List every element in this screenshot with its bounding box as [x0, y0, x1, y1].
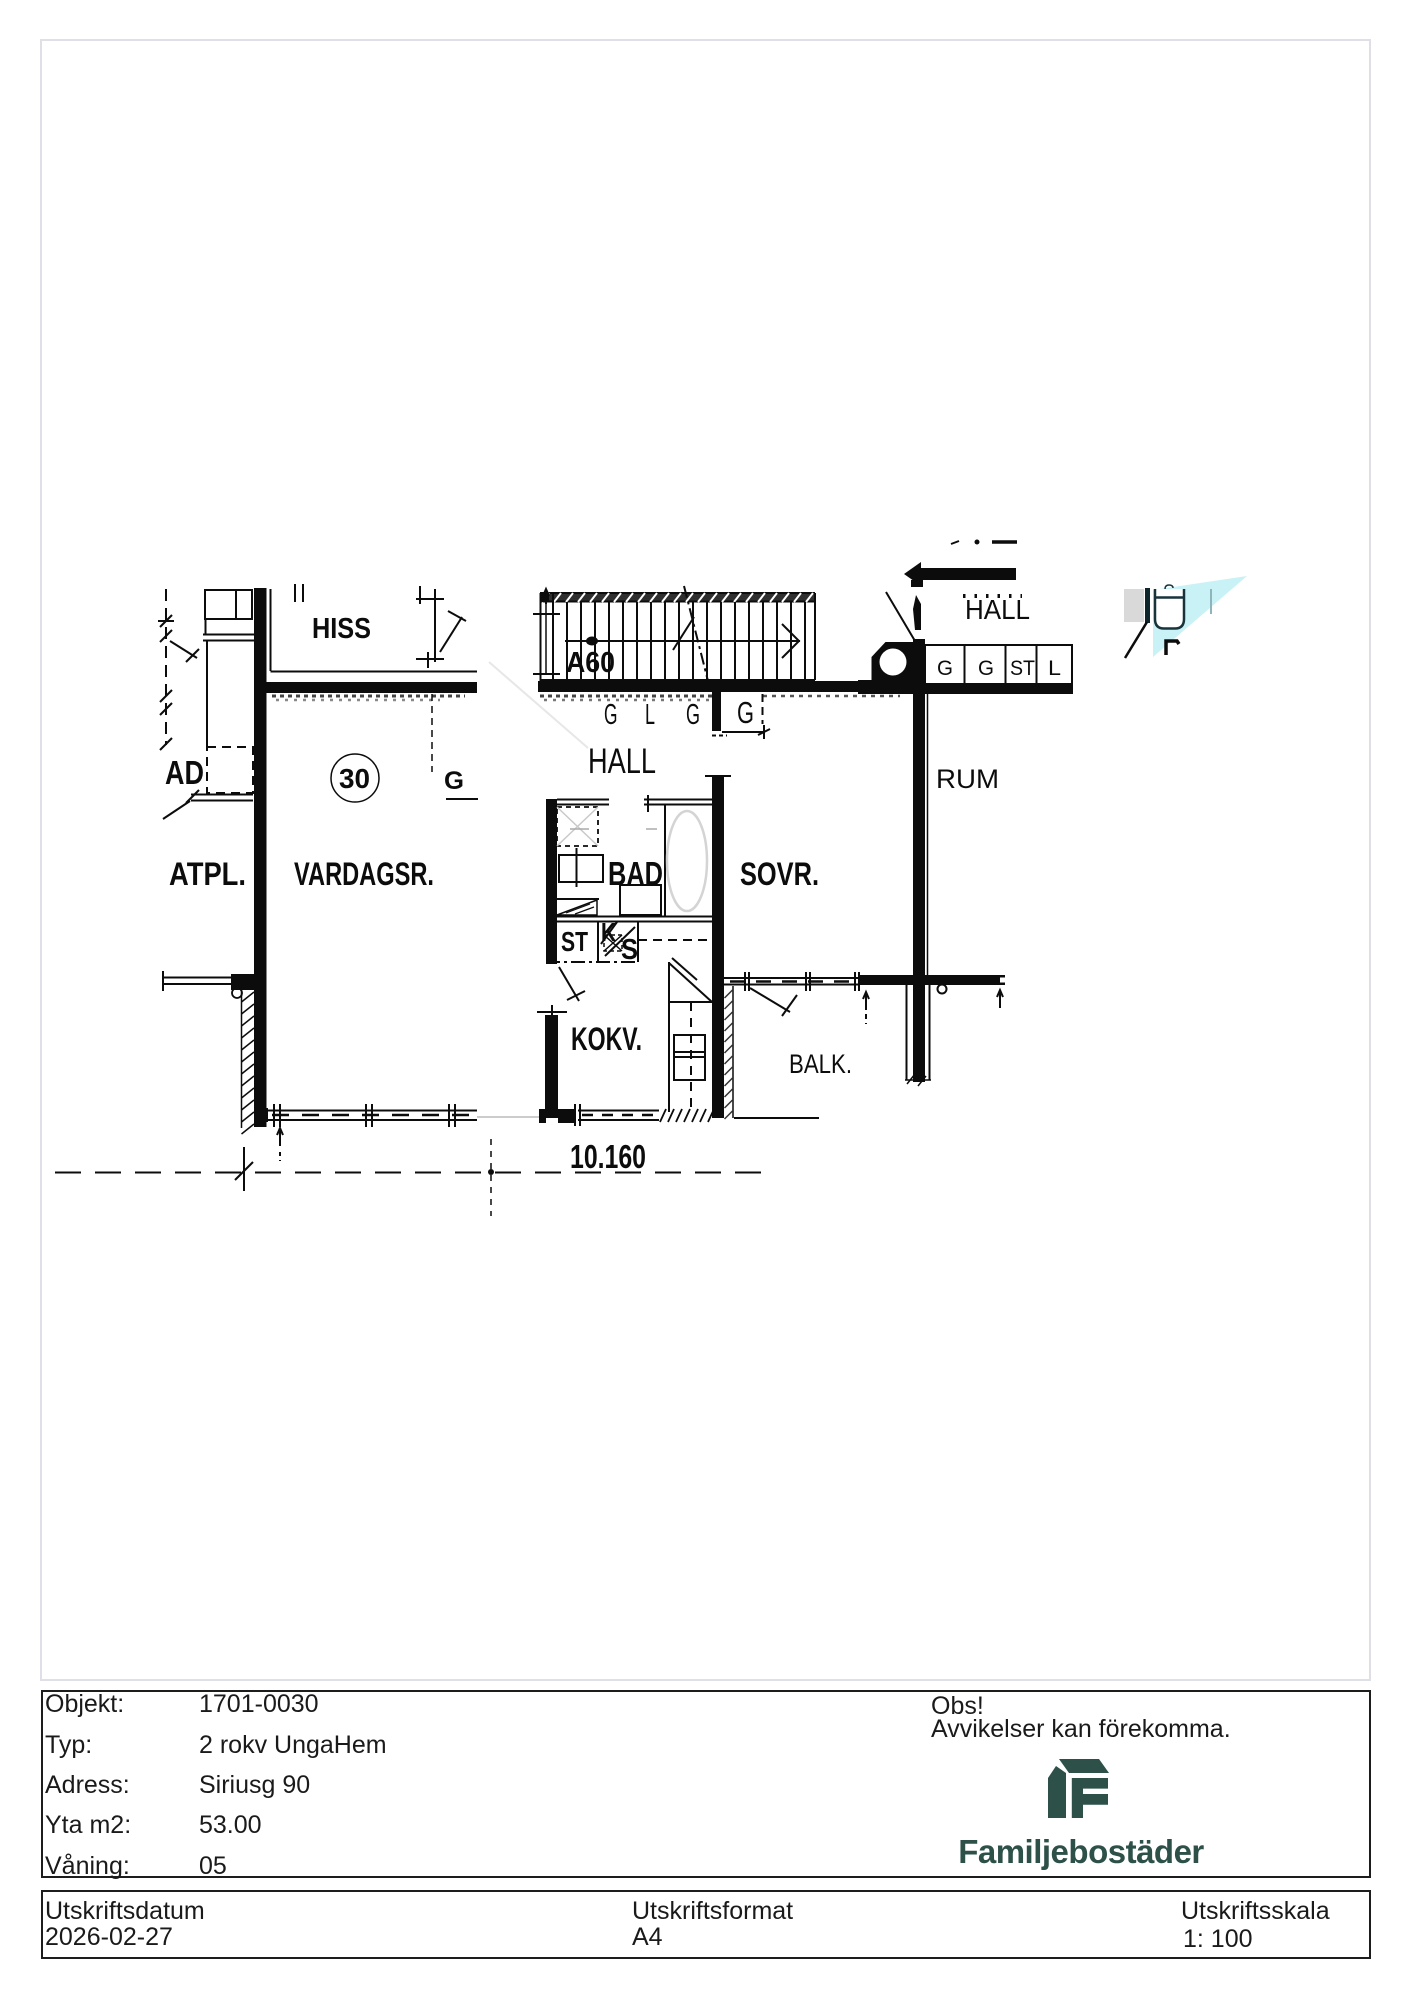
svg-text:ST: ST — [561, 926, 588, 957]
svg-text:30: 30 — [339, 763, 370, 794]
svg-text:A60: A60 — [566, 647, 615, 679]
svg-text:G: G — [737, 695, 754, 730]
svg-text:K: K — [601, 917, 616, 947]
svg-text:L: L — [1048, 657, 1061, 680]
svg-text:HALL: HALL — [588, 742, 656, 781]
svg-text:ST: ST — [1010, 657, 1035, 680]
svg-text:AD: AD — [165, 754, 204, 791]
svg-text:G: G — [604, 699, 618, 731]
svg-text:S: S — [621, 934, 638, 966]
svg-text:G: G — [978, 657, 994, 680]
svg-text:G: G — [937, 657, 953, 680]
svg-text:KOKV.: KOKV. — [571, 1021, 642, 1057]
svg-text:BAD: BAD — [608, 855, 663, 892]
svg-text:10.160: 10.160 — [570, 1138, 646, 1175]
svg-text:G: G — [686, 699, 700, 731]
svg-text:G: G — [444, 767, 464, 795]
svg-text:SOVR.: SOVR. — [740, 856, 819, 892]
svg-text:HISS: HISS — [312, 613, 371, 645]
svg-text:RUM: RUM — [936, 764, 999, 794]
svg-text:L: L — [645, 699, 655, 731]
svg-text:VARDAGSR.: VARDAGSR. — [294, 856, 434, 892]
svg-text:HALL: HALL — [965, 594, 1030, 625]
svg-text:BALK.: BALK. — [789, 1049, 852, 1079]
svg-text:ATPL.: ATPL. — [169, 856, 246, 892]
